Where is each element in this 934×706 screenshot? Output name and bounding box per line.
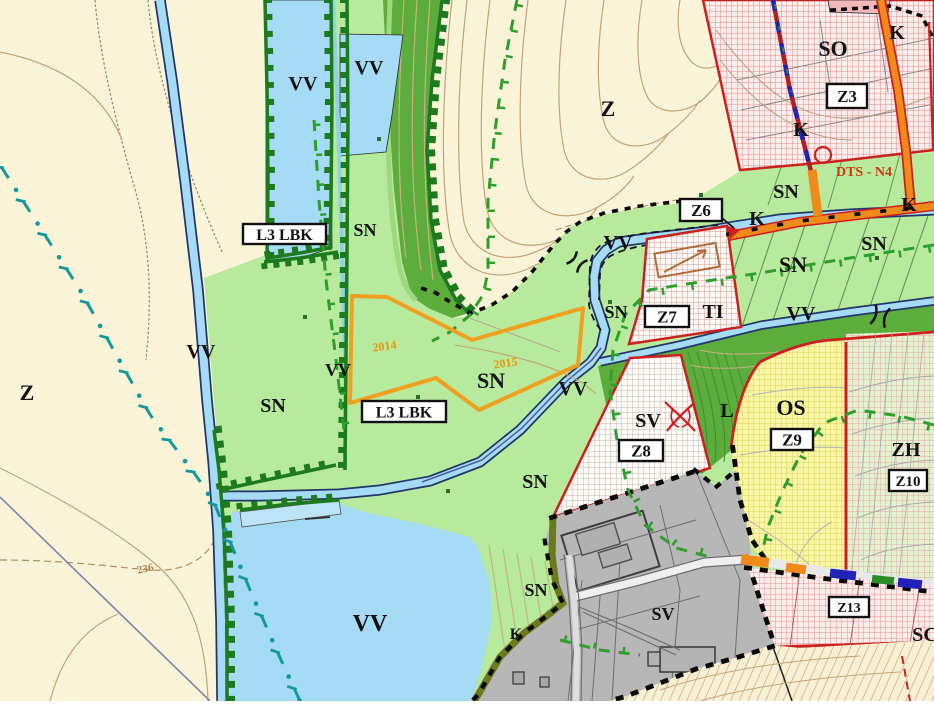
svg-text:SN: SN bbox=[260, 395, 286, 417]
svg-text:VV: VV bbox=[353, 611, 388, 637]
svg-text:SN: SN bbox=[773, 181, 799, 203]
svg-text:ZH: ZH bbox=[892, 439, 921, 461]
svg-text:Z13: Z13 bbox=[837, 601, 860, 616]
svg-text:VV: VV bbox=[604, 232, 633, 254]
svg-text:VV: VV bbox=[559, 378, 588, 400]
svg-text:K: K bbox=[793, 119, 809, 141]
svg-text:OS: OS bbox=[776, 395, 805, 420]
svg-text:SN: SN bbox=[477, 368, 505, 393]
svg-text:K: K bbox=[889, 22, 905, 44]
svg-text:VV: VV bbox=[325, 360, 351, 380]
svg-text:SV: SV bbox=[651, 604, 674, 624]
svg-text:L3 LBK: L3 LBK bbox=[376, 404, 433, 421]
svg-text:Z8: Z8 bbox=[631, 442, 651, 461]
svg-text:Z3: Z3 bbox=[837, 87, 857, 106]
svg-text:K: K bbox=[749, 208, 765, 230]
svg-text:K: K bbox=[901, 194, 917, 216]
svg-text:SO: SO bbox=[818, 36, 847, 61]
svg-text:SN: SN bbox=[522, 471, 548, 493]
svg-text:DTS - N4: DTS - N4 bbox=[836, 165, 892, 180]
svg-text:L3 LBK: L3 LBK bbox=[256, 227, 313, 244]
svg-text:Z9: Z9 bbox=[782, 431, 802, 450]
svg-text:VV: VV bbox=[289, 73, 318, 95]
svg-text:SN: SN bbox=[604, 302, 627, 322]
svg-text:VV: VV bbox=[355, 57, 384, 79]
svg-text:L: L bbox=[720, 400, 733, 422]
svg-text:Z10: Z10 bbox=[895, 474, 920, 490]
svg-text:SN: SN bbox=[353, 220, 376, 240]
svg-text:K: K bbox=[510, 626, 523, 643]
svg-text:SV: SV bbox=[635, 410, 661, 432]
svg-text:Z6: Z6 bbox=[691, 201, 711, 220]
svg-text:SN: SN bbox=[779, 252, 807, 277]
svg-text:VV: VV bbox=[787, 303, 816, 325]
svg-text:SC: SC bbox=[912, 624, 934, 646]
svg-text:SN: SN bbox=[861, 233, 887, 255]
svg-text:Z: Z bbox=[20, 380, 35, 405]
svg-text:SN: SN bbox=[524, 580, 547, 600]
svg-text:Z: Z bbox=[601, 96, 616, 121]
svg-text:Z7: Z7 bbox=[657, 308, 677, 327]
svg-text:VV: VV bbox=[187, 341, 216, 363]
svg-text:TI: TI bbox=[702, 301, 723, 323]
